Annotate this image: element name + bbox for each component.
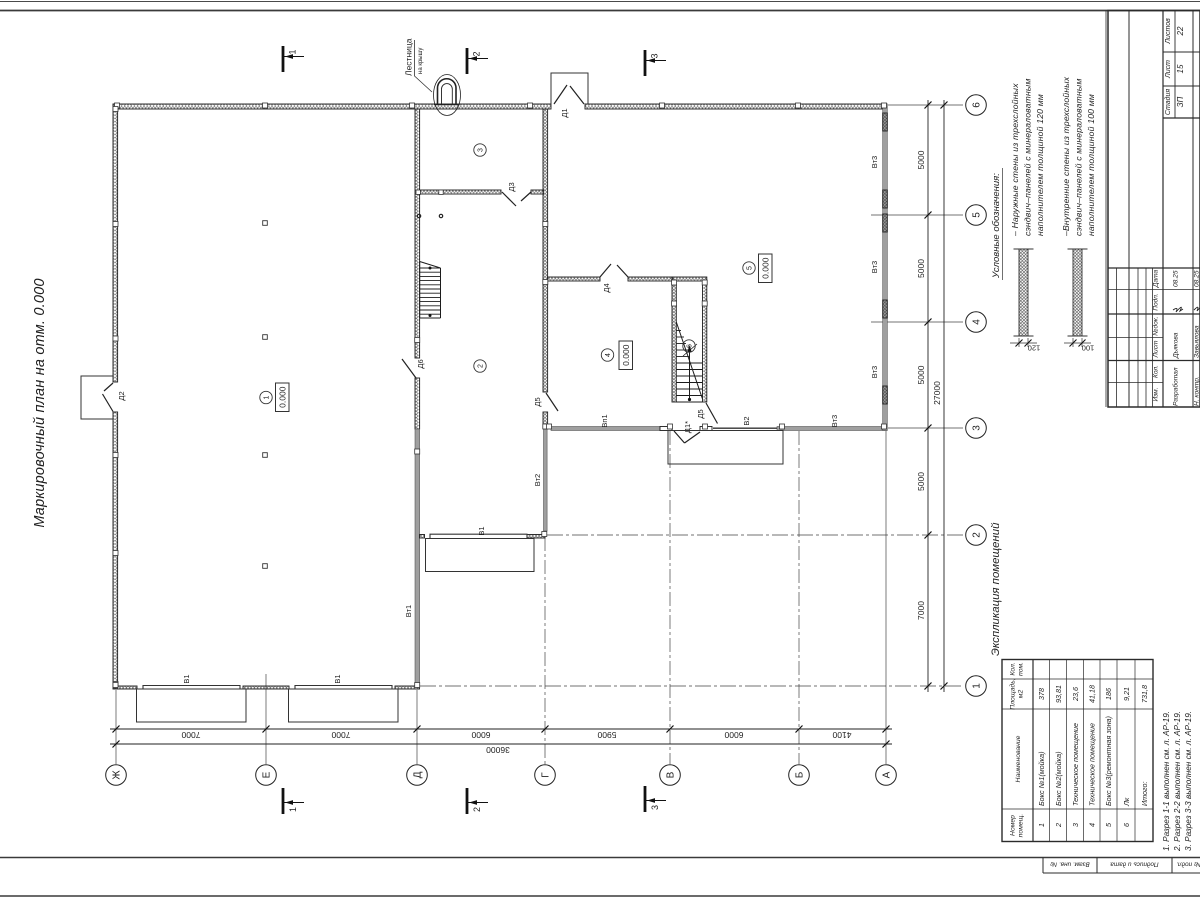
svg-text:2: 2 bbox=[472, 807, 482, 812]
svg-text:Техническое помещение: Техническое помещение bbox=[1071, 723, 1080, 806]
svg-text:36000: 36000 bbox=[486, 745, 510, 755]
svg-text:м2: м2 bbox=[1018, 690, 1025, 699]
svg-text:Кол.: Кол. bbox=[1010, 662, 1017, 675]
svg-text:Д2: Д2 bbox=[117, 391, 126, 400]
svg-text:5000: 5000 bbox=[916, 472, 926, 491]
svg-text:6: 6 bbox=[687, 344, 694, 348]
svg-text:Д1: Д1 bbox=[560, 108, 569, 117]
svg-text:Вп1: Вп1 bbox=[600, 414, 609, 427]
svg-text:0.000: 0.000 bbox=[278, 386, 288, 408]
svg-text:Д4: Д4 bbox=[602, 283, 611, 292]
svg-text:Дата: Дата bbox=[1153, 269, 1160, 288]
svg-text:4: 4 bbox=[1088, 823, 1097, 827]
svg-text:Д3: Д3 bbox=[507, 182, 516, 191]
svg-text:7000: 7000 bbox=[181, 730, 200, 740]
svg-text:6: 6 bbox=[972, 102, 983, 108]
svg-text:100: 100 bbox=[1082, 344, 1095, 353]
svg-text:Инв. № подл.: Инв. № подл. bbox=[1176, 861, 1200, 869]
svg-text:помещ.: помещ. bbox=[1018, 814, 1025, 838]
svg-text:Листов: Листов bbox=[1165, 18, 1172, 45]
svg-text:ЗП: ЗП bbox=[1176, 96, 1185, 107]
svg-text:2: 2 bbox=[1054, 823, 1063, 828]
svg-text:7000: 7000 bbox=[916, 601, 926, 620]
svg-text:Подп.: Подп. bbox=[1152, 293, 1160, 311]
svg-text:Техническое помещение: Техническое помещение bbox=[1088, 723, 1097, 806]
svg-text:1: 1 bbox=[288, 49, 298, 54]
svg-text:В1: В1 bbox=[477, 526, 486, 535]
svg-text:4100: 4100 bbox=[832, 730, 851, 740]
svg-text:№док.: №док. bbox=[1152, 316, 1160, 336]
svg-text:Номер: Номер bbox=[1010, 815, 1017, 836]
svg-text:1. Разрез 1-1 выполнен см. л.: 1. Разрез 1-1 выполнен см. л. АР-19. bbox=[1162, 711, 1171, 851]
svg-text:Вт3: Вт3 bbox=[830, 415, 839, 427]
svg-text:Кол.: Кол. bbox=[1153, 365, 1160, 378]
svg-text:сэндвич–панелей с минераловатн: сэндвич–панелей с минераловатным bbox=[1074, 78, 1084, 236]
svg-text:Взам. инв. №: Взам. инв. № bbox=[1050, 861, 1090, 868]
svg-text:2: 2 bbox=[478, 364, 485, 368]
svg-text:Ж: Ж bbox=[112, 770, 123, 780]
svg-text:А: А bbox=[882, 771, 893, 778]
svg-text:5: 5 bbox=[747, 266, 754, 270]
svg-text:Д6: Д6 bbox=[416, 359, 425, 368]
svg-text:– Наружные стены из трехслойны: – Наружные стены из трехслойных bbox=[1010, 83, 1020, 237]
svg-text:Д: Д bbox=[413, 771, 424, 778]
svg-text:Итого:: Итого: bbox=[1140, 781, 1149, 806]
svg-text:В1: В1 bbox=[182, 674, 191, 683]
svg-text:В: В bbox=[666, 771, 677, 778]
svg-text:наполнителем толщиной 100 мм: наполнителем толщиной 100 мм bbox=[1086, 94, 1096, 236]
svg-text:Разработал: Разработал bbox=[1172, 367, 1180, 406]
svg-text:15: 15 bbox=[1176, 64, 1185, 73]
svg-text:Стадия: Стадия bbox=[1164, 89, 1172, 115]
svg-text:Экспликация помещений: Экспликация помещений bbox=[990, 522, 1002, 656]
svg-text:22: 22 bbox=[1176, 26, 1185, 36]
svg-text:Дьякова: Дьякова bbox=[1173, 332, 1180, 359]
svg-text:–Внутренние стены из трехслойн: –Внутренние стены из трехслойных bbox=[1061, 76, 1071, 237]
svg-text:6000: 6000 bbox=[724, 730, 743, 740]
svg-text:6000: 6000 bbox=[471, 730, 490, 740]
svg-text:Б: Б bbox=[795, 771, 806, 778]
svg-text:Подпись и дата: Подпись и дата bbox=[1110, 861, 1159, 869]
svg-text:пом.: пом. bbox=[1018, 662, 1025, 676]
svg-text:3: 3 bbox=[650, 805, 660, 810]
svg-text:Вт3: Вт3 bbox=[870, 156, 879, 168]
svg-text:93,81: 93,81 bbox=[1054, 685, 1063, 703]
svg-text:Завьялова: Завьялова bbox=[1194, 325, 1200, 358]
svg-text:3: 3 bbox=[972, 425, 983, 431]
svg-text:186: 186 bbox=[1104, 688, 1113, 700]
svg-text:Н. контр.: Н. контр. bbox=[1194, 376, 1200, 406]
svg-text:5: 5 bbox=[972, 212, 983, 218]
svg-text:сэндвич–панелей с минераловатн: сэндвич–панелей с минераловатным bbox=[1023, 78, 1033, 236]
svg-text:Условные обозначения:: Условные обозначения: bbox=[991, 173, 1002, 279]
svg-text:4: 4 bbox=[605, 353, 612, 357]
svg-text:Вт2: Вт2 bbox=[533, 474, 542, 486]
svg-text:2: 2 bbox=[472, 51, 482, 56]
svg-text:В2: В2 bbox=[742, 416, 751, 425]
svg-text:5000: 5000 bbox=[916, 150, 926, 169]
svg-text:Наименование: Наименование bbox=[1015, 735, 1022, 782]
svg-text:378: 378 bbox=[1037, 688, 1046, 700]
svg-text:5900: 5900 bbox=[597, 730, 616, 740]
svg-text:Бокс №3(ремонтная зона): Бокс №3(ремонтная зона) bbox=[1104, 716, 1113, 806]
svg-text:Лестница: Лестница bbox=[404, 38, 414, 76]
svg-text:Д5: Д5 bbox=[696, 409, 705, 418]
svg-text:7000: 7000 bbox=[331, 730, 350, 740]
svg-text:Бокс №1(мойка): Бокс №1(мойка) bbox=[1037, 752, 1046, 806]
svg-text:Лк: Лк bbox=[1122, 797, 1131, 807]
svg-text:наполнителем толщиной 120 мм: наполнителем толщиной 120 мм bbox=[1035, 94, 1045, 236]
svg-text:2. Разрез 2-2 выполнен см. л.: 2. Разрез 2-2 выполнен см. л. АР-19. bbox=[1173, 711, 1182, 852]
svg-text:0.000: 0.000 bbox=[761, 257, 771, 279]
svg-text:3: 3 bbox=[478, 148, 485, 152]
svg-text:Бокс №2(мойка): Бокс №2(мойка) bbox=[1054, 752, 1063, 806]
svg-text:08.25: 08.25 bbox=[1173, 270, 1180, 287]
svg-text:Изм.: Изм. bbox=[1153, 387, 1160, 401]
svg-text:Маркировочный план на отм. 0.0: Маркировочный план на отм. 0.000 bbox=[32, 278, 48, 527]
svg-text:3. Разрез 3-3 выполнен см. л.: 3. Разрез 3-3 выполнен см. л. АР-19. bbox=[1184, 711, 1193, 851]
svg-text:3: 3 bbox=[650, 53, 660, 58]
svg-text:Д5: Д5 bbox=[533, 397, 542, 406]
svg-text:08.25: 08.25 bbox=[1194, 270, 1200, 287]
svg-text:Вт3: Вт3 bbox=[870, 261, 879, 273]
svg-text:1: 1 bbox=[288, 807, 298, 812]
svg-text:1: 1 bbox=[264, 395, 271, 399]
svg-text:27000: 27000 bbox=[932, 381, 942, 405]
svg-text:6: 6 bbox=[1122, 823, 1131, 827]
svg-text:120: 120 bbox=[1028, 344, 1041, 353]
svg-text:Вт3: Вт3 bbox=[870, 366, 879, 378]
svg-text:Лист: Лист bbox=[1153, 340, 1160, 358]
svg-text:на крышу: на крышу bbox=[418, 48, 424, 74]
svg-text:Вт1: Вт1 bbox=[404, 605, 413, 617]
svg-text:1: 1 bbox=[972, 683, 983, 689]
svg-text:Г: Г bbox=[541, 772, 552, 778]
svg-text:2: 2 bbox=[972, 532, 983, 538]
svg-text:3: 3 bbox=[1071, 823, 1080, 827]
svg-text:В1: В1 bbox=[333, 674, 342, 683]
svg-text:23,6: 23,6 bbox=[1071, 687, 1080, 702]
svg-text:5000: 5000 bbox=[916, 365, 926, 384]
svg-text:5000: 5000 bbox=[916, 259, 926, 278]
svg-text:9,21: 9,21 bbox=[1122, 687, 1131, 701]
svg-text:Лист: Лист bbox=[1165, 60, 1172, 79]
svg-text:Д1*: Д1* bbox=[683, 421, 692, 433]
svg-text:Е: Е bbox=[262, 771, 273, 778]
svg-text:731,8: 731,8 bbox=[1140, 685, 1149, 703]
svg-text:Площадь,: Площадь, bbox=[1009, 678, 1017, 710]
svg-text:0.000: 0.000 bbox=[621, 344, 631, 366]
svg-text:41,18: 41,18 bbox=[1088, 685, 1097, 703]
svg-text:1: 1 bbox=[1037, 823, 1046, 827]
svg-text:4: 4 bbox=[972, 319, 983, 325]
